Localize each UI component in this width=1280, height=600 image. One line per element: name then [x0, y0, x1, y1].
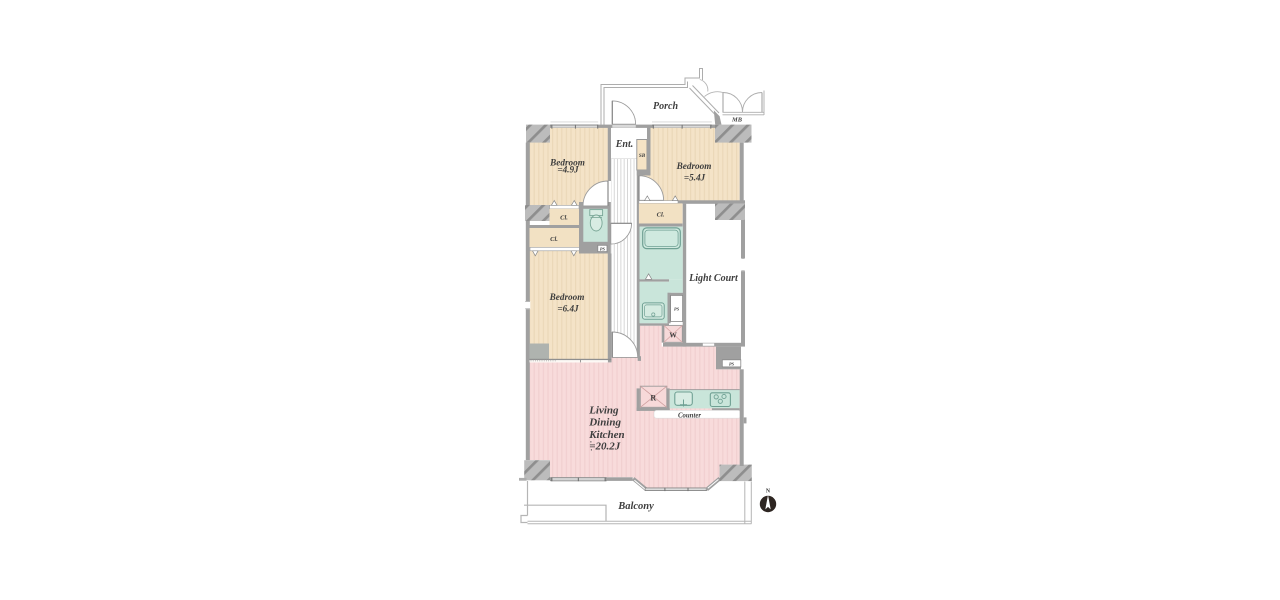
svg-text:R: R [650, 394, 656, 403]
svg-text:=20.2J: =20.2J [589, 440, 621, 452]
svg-text:Cl.: Cl. [657, 212, 665, 219]
svg-text:W: W [669, 331, 677, 340]
svg-text:Balcony: Balcony [617, 501, 654, 512]
svg-text:Dining: Dining [588, 416, 621, 428]
svg-text:Cl.: Cl. [560, 215, 568, 222]
svg-text:Light Court: Light Court [688, 273, 739, 284]
svg-text:SB: SB [639, 153, 646, 159]
svg-text:Ent.: Ent. [615, 139, 634, 150]
svg-text:Bedroom: Bedroom [549, 292, 585, 302]
svg-text:PS: PS [674, 307, 680, 312]
svg-text:Porch: Porch [653, 101, 678, 112]
svg-text:=4.9J: =4.9J [557, 165, 579, 175]
svg-text:Bedroom: Bedroom [676, 161, 712, 171]
svg-text:Living: Living [588, 405, 619, 417]
svg-text:=6.4J: =6.4J [557, 303, 579, 313]
svg-text:PS: PS [600, 247, 606, 252]
svg-text:MB: MB [731, 117, 743, 124]
svg-text:PS: PS [729, 362, 735, 367]
svg-text:Counter: Counter [678, 412, 701, 419]
svg-text:=5.4J: =5.4J [684, 173, 706, 183]
svg-text:Cl.: Cl. [550, 236, 558, 243]
